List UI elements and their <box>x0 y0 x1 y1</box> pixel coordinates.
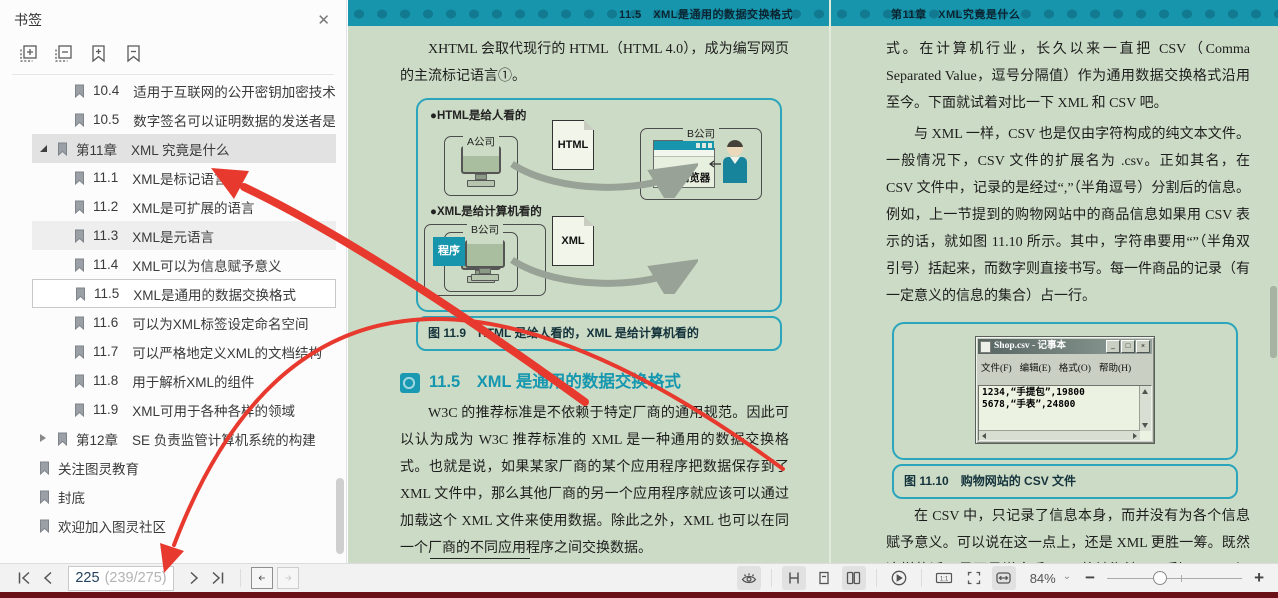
bookmark-icon <box>74 403 85 417</box>
computer-icon <box>465 240 505 281</box>
zoom-dropdown-caret-icon[interactable]: ⌄ <box>1063 571 1071 582</box>
bookmark-item[interactable]: 11.7可以严格地定义XML的文档结构 <box>32 337 336 366</box>
presentation-mode-button[interactable] <box>887 566 911 590</box>
bookmark-label: XML是标记语言 <box>132 168 227 188</box>
bookmark-label: XML可用于各种各样的领域 <box>132 400 295 420</box>
bookmark-item[interactable]: 第11章XML 究竟是什么 <box>32 134 336 163</box>
section-heading-11-5: 11.5 XML 是通用的数据交换格式 <box>400 369 789 396</box>
status-toolbar: 225 (239/275) <box>0 563 1278 592</box>
actual-size-button[interactable]: 1:1 <box>932 566 956 590</box>
left-page-header-text: 11.5 XML是通用的数据交换格式 <box>619 6 793 22</box>
bookmark-label: 关注图灵教育 <box>58 458 139 478</box>
section-title: 11.5 XML 是通用的数据交换格式 <box>429 369 681 396</box>
bookmark-number: 11.4 <box>93 257 118 272</box>
svg-text:1:1: 1:1 <box>940 576 949 582</box>
bookmark-number: 第12章 <box>76 429 118 449</box>
bookmark-label: XML是元语言 <box>132 226 214 246</box>
bookmark-item[interactable]: 11.2XML是可扩展的语言 <box>32 192 336 221</box>
bookmarks-toolbar <box>0 34 346 72</box>
bookmark-number: 11.7 <box>93 344 118 359</box>
notepad-menu-item: 帮助(H) <box>1099 356 1131 383</box>
view-tools: 1:1 84% ⌄ − + <box>737 566 1268 590</box>
bookmark-item[interactable]: 11.9XML可用于各种各样的领域 <box>32 395 336 424</box>
bookmark-icon <box>74 113 85 127</box>
bookmark-number: 10.5 <box>93 112 119 127</box>
notepad-menu-item: 文件(F) <box>981 356 1012 383</box>
bookmark-label: 封底 <box>58 487 85 507</box>
fit-page-button[interactable] <box>962 566 986 590</box>
collapse-all-icon[interactable] <box>52 42 74 64</box>
collapse-chevron-icon[interactable] <box>40 145 47 152</box>
minimize-icon: _ <box>1106 340 1120 353</box>
paragraph: XHTML 会取代现行的 HTML（HTML 4.0），成为编写网页的主流标记语… <box>400 36 789 90</box>
next-page-button[interactable] <box>182 566 206 590</box>
view-mode-eye-button[interactable] <box>737 566 761 590</box>
bookmark-label: XML是通用的数据交换格式 <box>133 284 296 304</box>
flow-arrow-icon <box>508 254 698 294</box>
bookmark-label: 数字签名可以证明数据的发送者是谁 <box>133 110 336 130</box>
csv-line: 1234,“手提包”,19800 <box>982 387 1148 399</box>
continuous-scroll-button[interactable] <box>782 566 806 590</box>
notepad-app-icon <box>980 341 991 353</box>
document-view: 11.5 XML是通用的数据交换格式 XHTML 会取代现行的 HTML（HTM… <box>348 0 1278 563</box>
bookmark-icon <box>74 84 85 98</box>
bookmark-item[interactable]: 11.8用于解析XML的组件 <box>32 366 336 395</box>
notepad-titlebar: Shop.csv - 记事本 _ □ × <box>978 339 1152 354</box>
expand-all-icon[interactable] <box>17 42 39 64</box>
bookmarks-panel-title: 书签 <box>14 10 42 30</box>
right-page-body: 式。在计算机行业，长久以来一直把 CSV（Comma Separated Val… <box>886 26 1250 563</box>
bookmark-item[interactable]: 11.3XML是元语言 <box>32 221 336 250</box>
bookmark-icon <box>74 200 85 214</box>
notepad-menu-item: 格式(O) <box>1059 356 1091 383</box>
bookmark-number: 11.8 <box>93 373 118 388</box>
pointer-arrow-icon <box>708 160 722 168</box>
bookmark-item[interactable]: 关注图灵教育 <box>32 453 336 482</box>
bookmark-number: 第11章 <box>76 139 117 159</box>
flow-arrow-icon <box>508 158 698 198</box>
page-total-label: (239/275) <box>105 570 167 586</box>
zoom-slider-tick <box>1181 575 1182 582</box>
current-page-label: 225 <box>75 570 99 586</box>
bookmark-icon <box>74 345 85 359</box>
html-document-icon: HTML <box>552 120 594 170</box>
figure-11-10-caption: 图 11.10 购物网站的 CSV 文件 <box>892 464 1238 499</box>
first-page-button[interactable] <box>12 566 36 590</box>
bookmark-label: 可以严格地定义XML的文档结构 <box>132 342 322 362</box>
person-icon <box>720 138 750 190</box>
right-page-paragraphs-top: 式。在计算机行业，长久以来一直把 CSV（Comma Separated Val… <box>886 36 1250 310</box>
bookmark-icon <box>74 374 85 388</box>
figure-row-html: A公司 HTML B公司 Web浏览器 <box>430 124 768 204</box>
previous-page-button[interactable] <box>36 566 60 590</box>
figure-11-9: ●HTML是给人看的 A公司 <box>416 98 782 351</box>
left-page-body: XHTML 会取代现行的 HTML（HTML 4.0），成为编写网页的主流标记语… <box>400 26 789 563</box>
paragraph: W3C 的推荐标准是不依赖于特定厂商的通用规范。因此可以认为成为 W3C 推荐标… <box>400 400 789 562</box>
paragraph: 式。在计算机行业，长久以来一直把 CSV（Comma Separated Val… <box>886 36 1250 117</box>
paragraph: 与 XML 一样，CSV 也是仅由字符构成的纯文本文件。一般情况下，CSV 文件… <box>886 121 1250 310</box>
footnote-rule <box>430 558 530 559</box>
paragraph: 在 CSV 中，只记录了信息本身，而并没有为各个信息赋予意义。可以说在这一点上，… <box>886 503 1250 563</box>
bookmark-item[interactable]: 11.4XML可以为信息赋予意义 <box>32 250 336 279</box>
bookmark-icon <box>74 316 85 330</box>
xml-document-icon: XML <box>552 216 594 266</box>
bookmark-item[interactable]: 11.5XML是通用的数据交换格式 <box>32 279 336 308</box>
bookmark-list: 10.4适用于互联网的公开密钥加密技术10.5数字签名可以证明数据的发送者是谁第… <box>0 76 338 540</box>
sidebar-divider <box>12 74 334 75</box>
right-page-header-text: 第11章 XML究竟是什么 <box>891 6 1020 22</box>
figure-11-9-caption: 图 11.9 HTML 是给人看的，XML 是给计算机看的 <box>416 316 782 351</box>
bookmark-icon <box>74 229 85 243</box>
left-page-paragraphs: W3C 的推荐标准是不依赖于特定厂商的通用规范。因此可以认为成为 W3C 推荐标… <box>400 400 789 563</box>
bookmark-icon <box>74 171 85 185</box>
toolbar-divider <box>240 569 241 587</box>
bookmark-number: 11.5 <box>94 286 119 301</box>
zoom-out-button[interactable]: − <box>1081 568 1099 588</box>
bookmark-label: 可以为XML标签设定命名空间 <box>132 313 308 333</box>
bookmarks-panel: 书签 ✕ 10.4适用于互联网的公开密钥加密技术10.5数字签名可以 <box>0 0 347 563</box>
bookmark-label: XML可以为信息赋予意义 <box>132 255 281 275</box>
close-window-icon: × <box>1136 340 1150 353</box>
toolbar-divider <box>771 569 772 587</box>
right-page-running-head: 第11章 XML究竟是什么 <box>831 0 1278 26</box>
bookmark-item[interactable]: 11.6可以为XML标签设定命名空间 <box>32 308 336 337</box>
page-number-input[interactable]: 225 (239/275) <box>68 566 174 591</box>
bookmark-icon <box>74 258 85 272</box>
notepad-vertical-scrollbar <box>1139 386 1151 431</box>
bookmark-icon <box>57 142 68 156</box>
bookmark-label: 适用于互联网的公开密钥加密技术 <box>133 81 336 101</box>
figure-11-10: Shop.csv - 记事本 _ □ × 文件(F)编辑(E)格式(O)帮助(H… <box>892 322 1238 499</box>
zoom-slider-track[interactable] <box>1107 578 1242 579</box>
bookmark-number: 11.2 <box>93 199 118 214</box>
notepad-menubar: 文件(F)编辑(E)格式(O)帮助(H) <box>978 354 1152 385</box>
bookmark-label: 欢迎加入图灵社区 <box>58 516 166 536</box>
bookmark-number: 10.4 <box>93 83 119 98</box>
maximize-icon: □ <box>1121 340 1135 353</box>
bookmark-item[interactable]: 欢迎加入图灵社区 <box>32 511 336 540</box>
section-marker-icon <box>400 373 420 393</box>
zoom-slider[interactable] <box>1107 570 1242 586</box>
toolbar-divider <box>921 569 922 587</box>
back-button[interactable] <box>251 567 273 589</box>
csv-text: 1234,“手提包”,198005678,“手表”,24800 <box>979 386 1151 412</box>
notepad-edit-area: 1234,“手提包”,198005678,“手表”,24800 <box>978 385 1152 441</box>
program-label: 程序 <box>433 237 465 266</box>
csv-line: 5678,“手表”,24800 <box>982 399 1148 411</box>
figure-row-xml: A公司 XML B公司 程序 <box>430 220 768 300</box>
zoom-slider-handle[interactable] <box>1153 571 1167 585</box>
document-scrollbar-thumb[interactable] <box>1270 286 1277 358</box>
add-bookmark-icon[interactable] <box>87 42 109 64</box>
right-page-paragraphs-bottom: 在 CSV 中，只记录了信息本身，而并没有为各个信息赋予意义。可以说在这一点上，… <box>886 503 1250 563</box>
bookmark-item[interactable]: 10.4适用于互联网的公开密钥加密技术 <box>32 76 336 105</box>
book-page-left: 11.5 XML是通用的数据交换格式 XHTML 会取代现行的 HTML（HTM… <box>348 0 829 563</box>
bookmark-label: XML是可扩展的语言 <box>132 197 254 217</box>
bookmark-label: SE 负责监管计算机系统的构建 <box>132 429 316 449</box>
toolbar-divider <box>876 569 877 587</box>
bookmark-number: 11.9 <box>93 402 118 417</box>
bottom-window-strip <box>0 592 1278 598</box>
bookmark-icon <box>57 432 68 446</box>
notepad-window: Shop.csv - 记事本 _ □ × 文件(F)编辑(E)格式(O)帮助(H… <box>975 336 1155 444</box>
bookmark-label: XML 究竟是什么 <box>131 139 230 159</box>
pdf-reader-window: 书签 ✕ 10.4适用于互联网的公开密钥加密技术10.5数字签名可以 <box>0 0 1278 598</box>
single-page-view-button[interactable] <box>812 566 836 590</box>
bookmark-item[interactable]: 封底 <box>32 482 336 511</box>
facing-pages-view-button[interactable] <box>842 566 866 590</box>
bookmark-icon <box>39 461 50 475</box>
company-a-box: A公司 <box>444 136 518 196</box>
book-page-right: 第11章 XML究竟是什么 式。在计算机行业，长久以来一直把 CSV（Comma… <box>831 0 1278 563</box>
zoom-in-button[interactable]: + <box>1250 568 1268 588</box>
expand-chevron-icon[interactable] <box>40 434 46 442</box>
bookmark-item[interactable]: 第12章SE 负责监管计算机系统的构建 <box>32 424 336 453</box>
bookmark-number: 11.6 <box>93 315 118 330</box>
forward-button[interactable] <box>277 567 299 589</box>
notepad-menu-item: 编辑(E) <box>1020 356 1051 383</box>
bookmark-icon <box>39 519 50 533</box>
bookmark-number: 11.1 <box>93 170 118 185</box>
bookmark-label: 用于解析XML的组件 <box>132 371 254 391</box>
bookmark-item[interactable]: 10.5数字签名可以证明数据的发送者是谁 <box>32 105 336 134</box>
sidebar-scrollbar-thumb[interactable] <box>336 478 344 554</box>
notepad-horizontal-scrollbar <box>979 430 1140 440</box>
bookmark-icon <box>39 490 50 504</box>
last-page-button[interactable] <box>206 566 230 590</box>
left-page-running-head: 11.5 XML是通用的数据交换格式 <box>348 0 829 26</box>
bookmark-item[interactable]: 11.1XML是标记语言 <box>32 163 336 192</box>
bookmark-icon <box>75 287 86 301</box>
fit-width-button[interactable] <box>992 566 1016 590</box>
zoom-percentage[interactable]: 84% <box>1030 571 1056 586</box>
bookmark-number: 11.3 <box>93 228 118 243</box>
close-icon[interactable]: ✕ <box>317 13 330 28</box>
remove-bookmark-icon[interactable] <box>122 42 144 64</box>
